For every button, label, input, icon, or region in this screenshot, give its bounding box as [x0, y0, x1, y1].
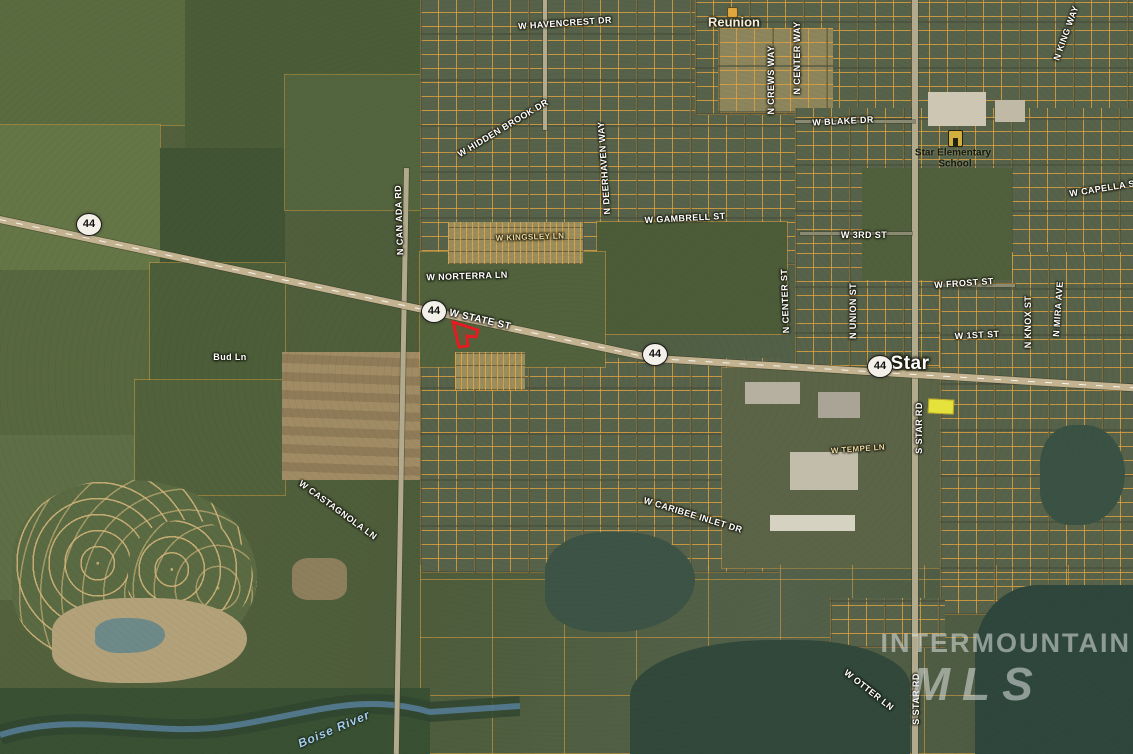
street-label-bud-ln: Bud Ln — [213, 352, 246, 362]
highway-44-shield: 44 — [421, 300, 447, 323]
boise-river-path — [0, 640, 520, 754]
highway-44-shield: 44 — [867, 355, 893, 378]
street-label-w-castagnola-ln: W CASTAGNOLA LN — [297, 478, 379, 541]
school-building — [995, 100, 1025, 122]
farm-field — [150, 263, 285, 383]
farm-field — [0, 270, 150, 435]
street-label-n-center-st: N CENTER ST — [779, 269, 791, 334]
dense-lot-rows — [455, 352, 525, 390]
open-field — [597, 222, 787, 334]
street-label-w-3rd-st: W 3RD ST — [841, 230, 887, 240]
map-canvas[interactable]: Star Reunion Boise River Star Elementary… — [0, 0, 1133, 754]
dense-lot-rows — [448, 222, 583, 264]
farm-field — [0, 0, 185, 125]
building — [818, 392, 860, 418]
building — [770, 515, 855, 531]
highlighted-lot — [928, 398, 955, 414]
school-label-line2: School — [938, 159, 971, 170]
river-water — [975, 585, 1133, 754]
street-label-n-crews-way: N CREWS WAY — [766, 45, 776, 114]
farm-field — [160, 148, 285, 263]
street-label-s-star-rd: S STAR RD — [914, 402, 924, 453]
highway-44-shield: 44 — [76, 213, 102, 236]
place-label-reunion: Reunion — [708, 15, 760, 30]
school-icon — [948, 130, 963, 147]
open-field — [420, 252, 605, 367]
open-field — [862, 168, 1012, 280]
highway-44-shield: 44 — [642, 343, 668, 366]
subdivision-grid — [830, 598, 945, 648]
street-label-n-union-st: N UNION ST — [848, 283, 858, 339]
school-building — [928, 92, 986, 126]
school-label-line1: Star Elementary — [915, 148, 991, 159]
dirt-patch — [292, 558, 347, 600]
city-label-star: Star — [891, 353, 930, 375]
farm-field — [135, 380, 285, 495]
street-label-s-star-rd: S STAR RD — [911, 673, 921, 724]
building — [790, 452, 858, 490]
street-label-n-center-way: N CENTER WAY — [792, 22, 802, 95]
building — [745, 382, 800, 404]
river-water — [630, 640, 910, 754]
street-label-n-knox-st: N KNOX ST — [1023, 296, 1033, 349]
